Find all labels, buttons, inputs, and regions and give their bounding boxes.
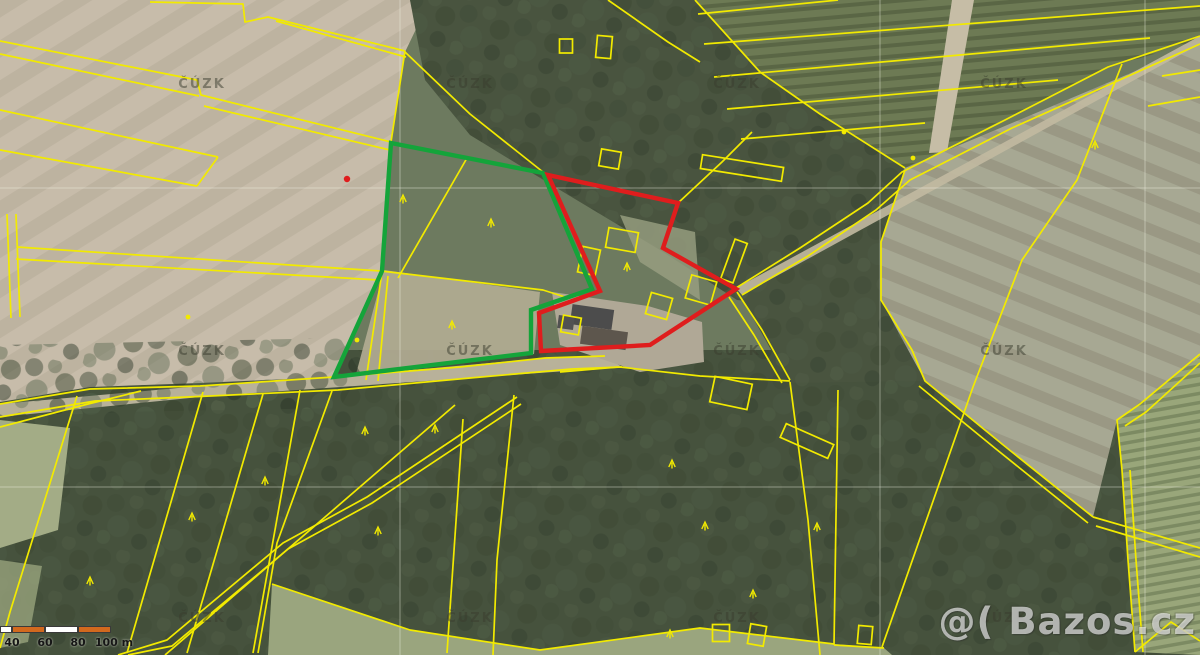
svg-text:ČÚZK: ČÚZK (980, 610, 1028, 626)
svg-text:ČÚZK: ČÚZK (178, 76, 226, 92)
cadastral-map-view[interactable]: ČÚZKČÚZKČÚZKČÚZKČÚZKČÚZKČÚZKČÚZKČÚZKČÚZK… (0, 0, 1200, 655)
svg-text:ČÚZK: ČÚZK (713, 610, 761, 626)
svg-text:ČÚZK: ČÚZK (446, 343, 494, 359)
red-point-marker (344, 176, 350, 182)
svg-text:ČÚZK: ČÚZK (178, 343, 226, 359)
svg-text:ČÚZK: ČÚZK (446, 610, 494, 626)
svg-text:ČÚZK: ČÚZK (980, 343, 1028, 359)
svg-text:ČÚZK: ČÚZK (446, 76, 494, 92)
aerial-map-image: ČÚZKČÚZKČÚZKČÚZKČÚZKČÚZKČÚZKČÚZKČÚZKČÚZK… (0, 0, 1200, 655)
svg-text:ČÚZK: ČÚZK (713, 343, 761, 359)
svg-text:ČÚZK: ČÚZK (980, 76, 1028, 92)
svg-text:ČÚZK: ČÚZK (713, 76, 761, 92)
svg-text:ČÚZK: ČÚZK (178, 610, 226, 626)
aerial-imagery (0, 0, 1200, 655)
